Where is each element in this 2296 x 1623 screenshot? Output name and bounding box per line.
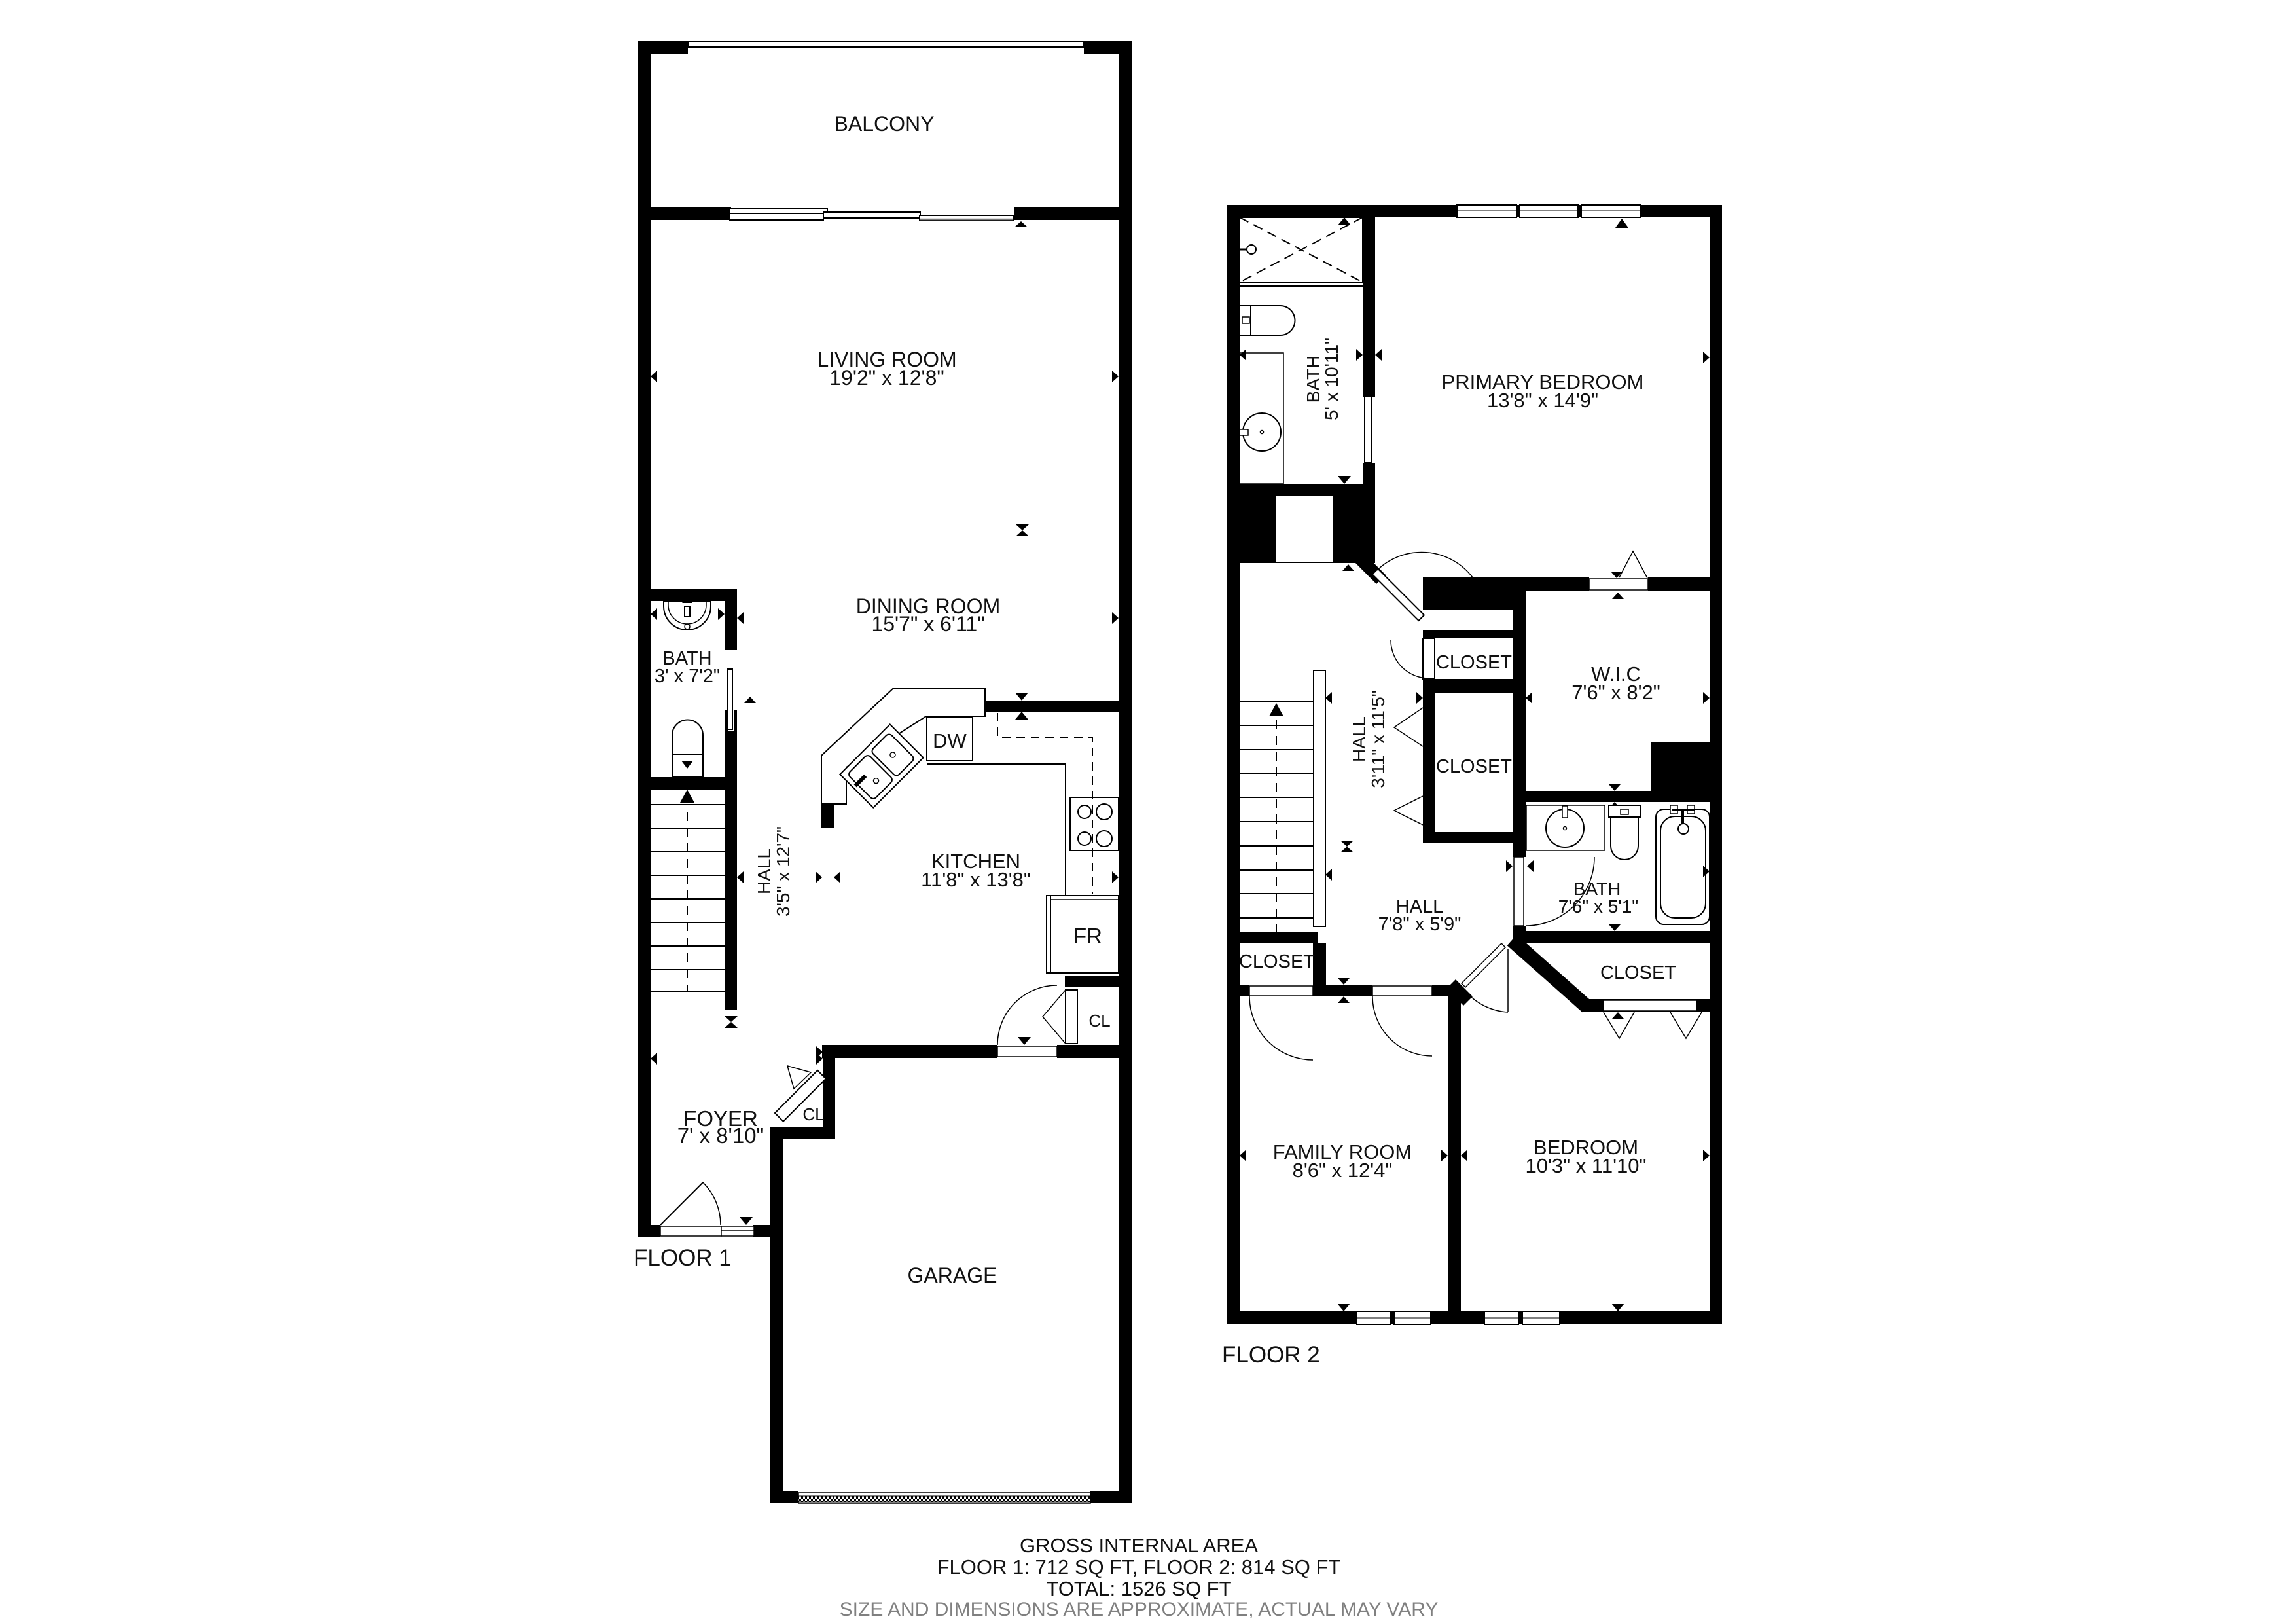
svg-text:FLOOR 1: FLOOR 1: [634, 1245, 732, 1271]
svg-text:3'11" x 11'5": 3'11" x 11'5": [1368, 690, 1388, 788]
svg-text:CL: CL: [1088, 1011, 1110, 1030]
svg-text:DW: DW: [933, 729, 967, 752]
svg-text:7'8" x 5'9": 7'8" x 5'9": [1378, 914, 1462, 935]
svg-text:CL: CL: [802, 1104, 824, 1124]
svg-text:7'6" x 5'1": 7'6" x 5'1": [1558, 896, 1638, 917]
svg-text:3' x 7'2": 3' x 7'2": [655, 666, 720, 687]
svg-text:FLOOR 1: 712 SQ FT, FLOOR 2: 8: FLOOR 1: 712 SQ FT, FLOOR 2: 814 SQ FT: [937, 1556, 1341, 1578]
svg-text:SIZE AND DIMENSIONS ARE APPROX: SIZE AND DIMENSIONS ARE APPROXIMATE, ACT…: [840, 1599, 1439, 1620]
svg-text:HALL: HALL: [1349, 716, 1369, 762]
svg-text:BATH: BATH: [1303, 356, 1323, 403]
svg-text:FR: FR: [1073, 924, 1102, 948]
svg-text:BALCONY: BALCONY: [834, 112, 935, 136]
svg-text:15'7" x 6'11": 15'7" x 6'11": [871, 612, 984, 636]
svg-text:13'8" x 14'9": 13'8" x 14'9": [1487, 389, 1598, 412]
svg-text:10'3" x 11'10": 10'3" x 11'10": [1526, 1154, 1647, 1177]
svg-text:GARAGE: GARAGE: [908, 1264, 997, 1287]
svg-text:5' x 10'11": 5' x 10'11": [1321, 338, 1342, 420]
svg-text:CLOSET: CLOSET: [1436, 652, 1512, 673]
svg-text:11'8" x 13'8": 11'8" x 13'8": [921, 868, 1031, 891]
svg-text:7'6" x 8'2": 7'6" x 8'2": [1571, 681, 1660, 704]
svg-text:19'2" x 12'8": 19'2" x 12'8": [829, 366, 944, 390]
svg-text:CLOSET: CLOSET: [1239, 951, 1315, 972]
svg-text:FLOOR 2: FLOOR 2: [1222, 1342, 1320, 1368]
svg-text:GROSS INTERNAL AREA: GROSS INTERNAL AREA: [1020, 1534, 1258, 1557]
svg-text:3'5" x 12'7": 3'5" x 12'7": [773, 826, 793, 917]
svg-text:HALL: HALL: [754, 848, 774, 894]
svg-text:8'6" x 12'4": 8'6" x 12'4": [1293, 1159, 1393, 1182]
svg-text:TOTAL: 1526 SQ FT: TOTAL: 1526 SQ FT: [1046, 1577, 1231, 1600]
svg-text:CLOSET: CLOSET: [1600, 962, 1676, 983]
svg-text:7' x 8'10": 7' x 8'10": [677, 1123, 764, 1148]
svg-text:CLOSET: CLOSET: [1436, 756, 1512, 777]
